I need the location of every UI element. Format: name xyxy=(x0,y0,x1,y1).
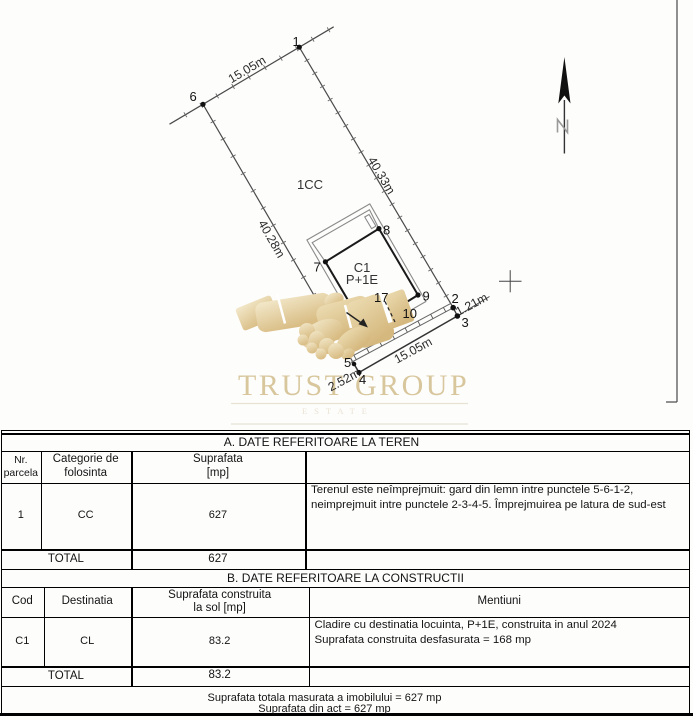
svg-text:17: 17 xyxy=(374,290,388,305)
svg-text:9: 9 xyxy=(423,289,430,304)
svg-text:40.33m: 40.33m xyxy=(365,154,398,196)
svg-text:40.28m: 40.28m xyxy=(255,218,287,261)
svg-text:6: 6 xyxy=(190,89,197,104)
svg-text:10: 10 xyxy=(403,306,417,321)
svg-text:8: 8 xyxy=(383,223,390,238)
svg-text:15.05m: 15.05m xyxy=(392,335,435,367)
svg-text:ESTATE: ESTATE xyxy=(302,406,374,416)
svg-text:1.21m: 1.21m xyxy=(453,290,490,318)
svg-text:P+1E: P+1E xyxy=(346,272,378,287)
svg-text:3: 3 xyxy=(462,315,469,330)
svg-text:7: 7 xyxy=(314,260,321,275)
svg-text:1CC: 1CC xyxy=(297,177,323,192)
svg-text:1: 1 xyxy=(293,34,300,49)
